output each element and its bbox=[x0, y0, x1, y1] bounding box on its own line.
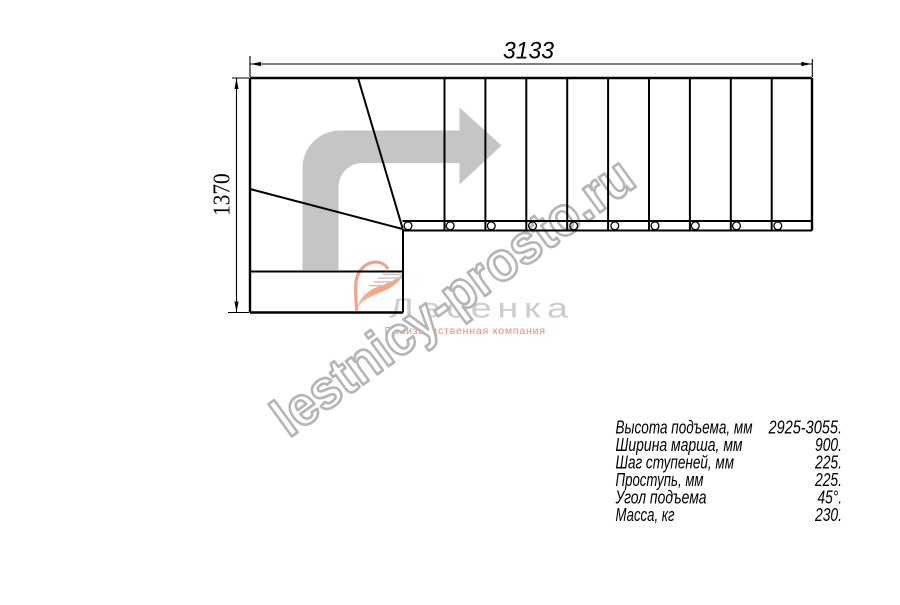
svg-text:230.: 230. bbox=[814, 505, 842, 525]
svg-text:1370: 1370 bbox=[209, 173, 235, 216]
svg-text:Масса, кг: Масса, кг bbox=[616, 505, 675, 525]
svg-text:3133: 3133 bbox=[503, 38, 555, 65]
